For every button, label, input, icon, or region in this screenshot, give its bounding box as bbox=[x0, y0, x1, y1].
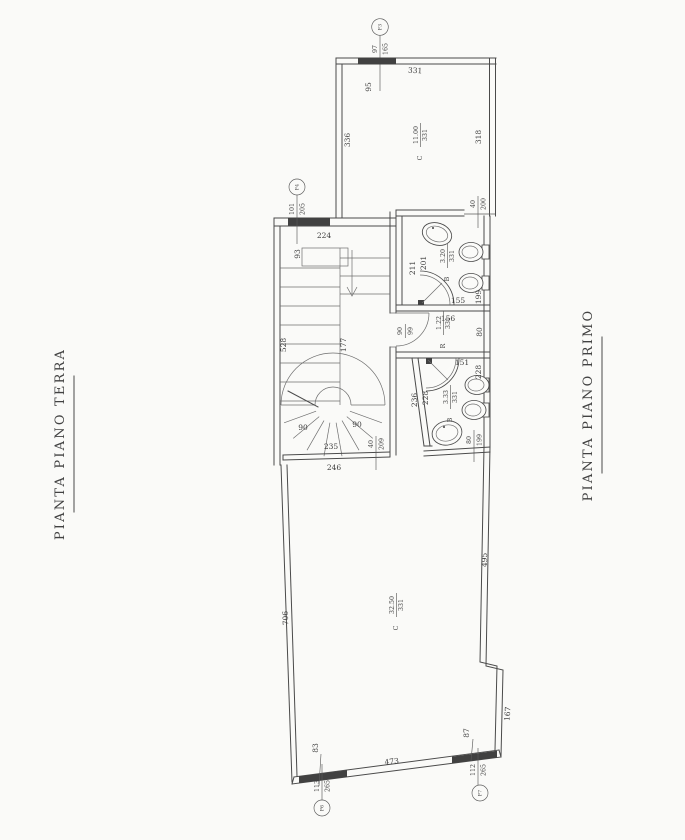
dim-bath-up-a: 211 bbox=[408, 261, 417, 275]
window-marker-top: F3 97 165 95 bbox=[364, 19, 390, 92]
window-sill-filled bbox=[288, 218, 330, 226]
dim-main-low-right: 87 bbox=[462, 728, 471, 738]
dim-winder-right: 90 bbox=[352, 420, 362, 429]
svg-text:165: 165 bbox=[383, 43, 390, 55]
dim-winder-left: 90 bbox=[298, 423, 308, 432]
opening-size-door-low: 80 199 bbox=[466, 434, 484, 446]
main-room: 40 209 C 32.50 331 706 495 473 167 87 83… bbox=[281, 436, 513, 816]
svg-text:331: 331 bbox=[452, 391, 459, 403]
opening-marker-id: P7 bbox=[478, 790, 484, 796]
dim-top-left: 336 bbox=[343, 133, 352, 148]
svg-text:C: C bbox=[393, 625, 400, 630]
upper-bathroom: 211 201 B 3.20 331 199 155 bbox=[396, 210, 490, 311]
svg-text:1.22: 1.22 bbox=[436, 316, 443, 330]
bidet bbox=[459, 274, 489, 293]
bidet bbox=[462, 401, 489, 420]
svg-text:97: 97 bbox=[372, 45, 379, 53]
stair-direction-arrow bbox=[347, 250, 357, 296]
svg-text:99: 99 bbox=[408, 327, 415, 335]
svg-text:11.00: 11.00 bbox=[413, 126, 420, 144]
svg-text:C: C bbox=[417, 155, 424, 160]
dim-main-corner: 167 bbox=[503, 706, 513, 721]
lower-bathroom: 151 228 236 228 B 3.33 331 80 199 bbox=[410, 358, 489, 462]
window-sill-filled bbox=[452, 751, 497, 764]
svg-text:200: 200 bbox=[481, 198, 488, 210]
dim-main-bottom: 473 bbox=[384, 756, 400, 767]
svg-text:90: 90 bbox=[397, 327, 404, 335]
dim-niche: 151 bbox=[455, 358, 469, 367]
dim-stair-length: 528 bbox=[279, 338, 288, 353]
window-sill-filled bbox=[299, 770, 347, 783]
tap-dot bbox=[432, 227, 434, 229]
dim-bath-low-right: 228 bbox=[474, 365, 483, 380]
svg-text:40: 40 bbox=[368, 440, 375, 448]
svg-text:R: R bbox=[440, 343, 447, 348]
shower bbox=[418, 271, 454, 305]
svg-text:331: 331 bbox=[398, 599, 405, 611]
window-sill-filled bbox=[358, 58, 396, 65]
stair-landing bbox=[302, 248, 348, 266]
svg-text:331: 331 bbox=[449, 250, 456, 262]
dim-top-right: 318 bbox=[474, 130, 483, 145]
right-wall-outer bbox=[486, 447, 503, 757]
svg-text:B: B bbox=[444, 276, 451, 281]
dim-hall-width: 246 bbox=[327, 463, 342, 472]
dim-bath-low-b: 228 bbox=[421, 391, 430, 406]
room-label-bath-upper: B 3.20 331 bbox=[440, 244, 456, 281]
title-piano-terra: PIANTA PIANO TERRA bbox=[53, 348, 68, 540]
right-title: PIANTA PIANO PRIMO bbox=[581, 309, 602, 502]
svg-text:80: 80 bbox=[466, 436, 473, 444]
title-piano-primo: PIANTA PIANO PRIMO bbox=[581, 309, 596, 502]
scanned-floor-plan-page: PIANTA PIANO TERRA PIANTA PIANO PRIMO F3… bbox=[0, 0, 685, 840]
tap-dot bbox=[443, 426, 445, 428]
room-label-bath-lower: B 3.33 331 bbox=[443, 385, 459, 422]
svg-text:265: 265 bbox=[481, 764, 488, 776]
opening-size-door-hall: 40 209 bbox=[368, 438, 386, 450]
dim-storage-right: 80 bbox=[475, 327, 484, 337]
top-room: 331 336 318 C 11.00 331 40 200 bbox=[336, 58, 496, 229]
dim-corridor: 224 bbox=[317, 231, 332, 240]
svg-text:331: 331 bbox=[422, 129, 429, 141]
dim-bath-up-right: 199 bbox=[474, 290, 483, 305]
dim-main-right: 495 bbox=[480, 552, 489, 567]
dim-stair-void: 177 bbox=[339, 338, 348, 353]
opening-marker-id: F4 bbox=[295, 184, 301, 191]
dim-top-wall: 331 bbox=[408, 66, 423, 76]
svg-text:265: 265 bbox=[325, 780, 332, 792]
svg-text:B: B bbox=[447, 417, 454, 422]
svg-text:32.50: 32.50 bbox=[389, 596, 396, 614]
dim-bath-low-a: 236 bbox=[410, 393, 419, 408]
svg-text:40: 40 bbox=[470, 200, 477, 208]
opening-size: 113 265 bbox=[314, 780, 332, 792]
room-label-main: C 32.50 331 bbox=[389, 593, 405, 630]
opening-size: 112 265 bbox=[470, 764, 488, 776]
corridor: F4 101 205 224 93 bbox=[274, 179, 396, 259]
opening-marker-id: F3 bbox=[378, 24, 384, 31]
opening-size-door-top: 40 200 bbox=[470, 198, 488, 210]
room-label-top: C 11.00 331 bbox=[413, 123, 429, 160]
svg-text:331: 331 bbox=[445, 317, 452, 329]
toilet bbox=[459, 243, 489, 262]
dim-corridor-window: 93 bbox=[293, 249, 302, 259]
svg-text:113: 113 bbox=[314, 780, 321, 792]
opening-size-storage-door: 90 99 bbox=[397, 324, 415, 338]
svg-text:101: 101 bbox=[289, 203, 296, 215]
right-wall-inner bbox=[480, 447, 497, 750]
floor-plan-canvas: PIANTA PIANO TERRA PIANTA PIANO PRIMO F3… bbox=[0, 0, 685, 840]
svg-text:112: 112 bbox=[470, 764, 477, 776]
washbasin bbox=[419, 219, 454, 249]
window-marker-bottom-left: 113 265 P6 bbox=[314, 764, 332, 816]
dim-bath-up-bottom: 155 bbox=[451, 296, 466, 305]
svg-text:3.33: 3.33 bbox=[443, 390, 450, 404]
svg-text:3.20: 3.20 bbox=[440, 249, 447, 263]
svg-text:205: 205 bbox=[300, 203, 307, 215]
dim-main-low-left: 83 bbox=[311, 743, 320, 753]
opening-size: 101 205 bbox=[289, 203, 307, 215]
svg-text:199: 199 bbox=[477, 434, 484, 446]
storage-room: 156 R 1.22 331 80 90 99 bbox=[396, 311, 490, 358]
dim-main-left: 706 bbox=[281, 611, 291, 626]
dim-winder-width: 235 bbox=[324, 442, 339, 451]
opening-size: 97 165 bbox=[372, 43, 390, 55]
dim-bath-up-b: 201 bbox=[419, 256, 428, 270]
svg-text:209: 209 bbox=[379, 438, 386, 450]
stair-treads bbox=[280, 258, 390, 401]
stair-break-line bbox=[288, 391, 318, 407]
opening-marker-id: P6 bbox=[320, 805, 326, 811]
dim-top-window: 95 bbox=[364, 82, 373, 92]
left-title: PIANTA PIANO TERRA bbox=[53, 348, 74, 540]
